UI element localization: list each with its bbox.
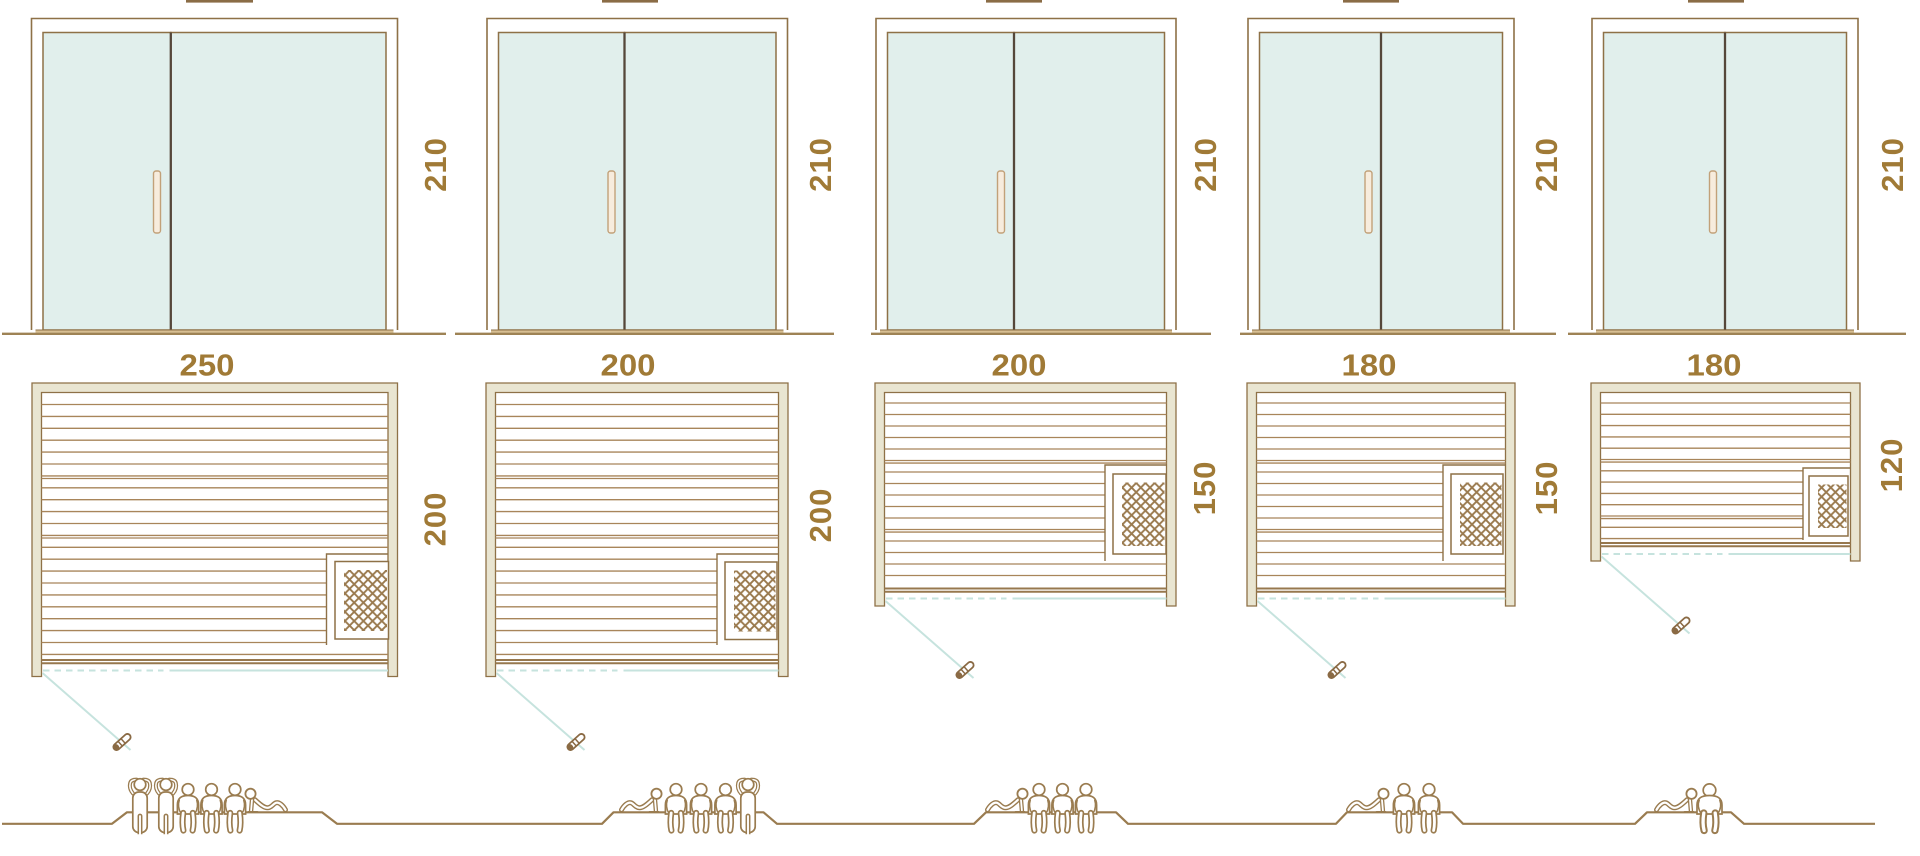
svg-text:210: 210 (418, 137, 453, 192)
svg-text:200: 200 (803, 488, 838, 543)
svg-text:150: 150 (1187, 461, 1222, 516)
svg-text:180: 180 (1687, 348, 1742, 383)
svg-text:210: 210 (1188, 137, 1223, 192)
svg-text:210: 210 (1875, 137, 1910, 192)
svg-text:150: 150 (1529, 461, 1564, 516)
svg-text:210: 210 (1529, 137, 1564, 192)
svg-text:250: 250 (180, 348, 235, 383)
svg-text:180: 180 (1342, 348, 1397, 383)
svg-text:210: 210 (803, 137, 838, 192)
svg-text:200: 200 (601, 348, 656, 383)
svg-text:200: 200 (418, 492, 453, 547)
svg-text:120: 120 (1874, 438, 1909, 493)
svg-text:200: 200 (992, 348, 1047, 383)
